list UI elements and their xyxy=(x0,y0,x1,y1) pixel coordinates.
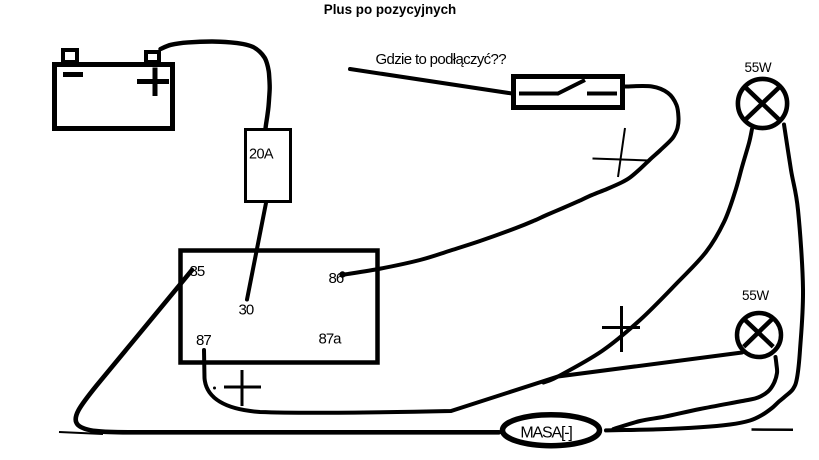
svg-text:20A: 20A xyxy=(249,147,274,163)
svg-text:55W: 55W xyxy=(742,288,769,303)
svg-text:30: 30 xyxy=(239,302,254,319)
svg-text:55W: 55W xyxy=(745,60,772,75)
svg-text:MASA[-]: MASA[-] xyxy=(520,425,572,442)
svg-text:87: 87 xyxy=(196,332,211,349)
svg-text:Plus po pozycyjnych: Plus po pozycyjnych xyxy=(324,2,456,17)
svg-text:87a: 87a xyxy=(319,331,343,348)
svg-text:Gdzie to podłączyć??: Gdzie to podłączyć?? xyxy=(376,51,507,68)
